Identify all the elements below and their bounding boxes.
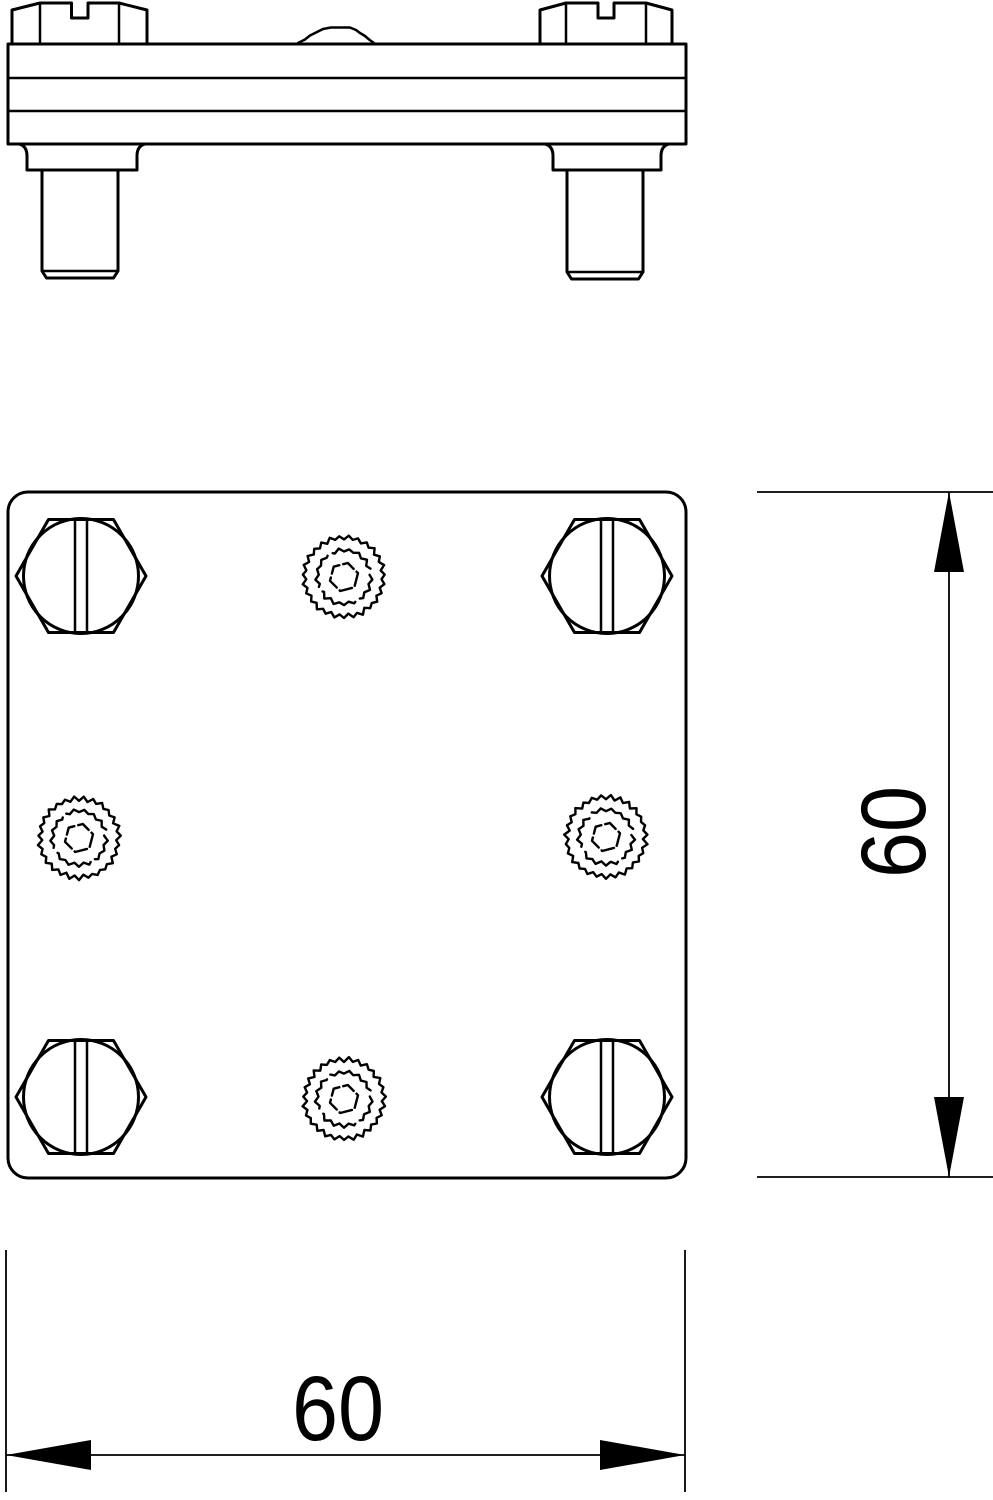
drawing-sheet: 60 60 <box>0 0 993 1500</box>
knurled-socket-middle-left <box>38 797 121 881</box>
side-view <box>8 3 686 279</box>
knurl-inner-ring <box>315 549 372 606</box>
hex-bolt-head-circle <box>550 1040 665 1155</box>
hex-bolt-head-circle <box>550 519 665 634</box>
screw-head-right-outline <box>540 3 672 44</box>
stud-left-shank <box>42 170 118 278</box>
hex-bolt-top-left <box>16 519 146 634</box>
side-view-plate-stack <box>8 44 686 144</box>
width-dimension-label: 60 <box>292 1357 384 1460</box>
screw-head-left-outline <box>12 3 147 44</box>
stud-right <box>545 144 669 279</box>
stud-right-collar <box>545 144 669 170</box>
knurl-inner-ring <box>577 808 635 865</box>
knurl-inner-ring <box>315 1071 373 1128</box>
hex-socket <box>330 1085 358 1113</box>
arrowhead-left <box>6 1440 91 1470</box>
plate-stack-outline <box>8 44 686 144</box>
vertical-dimension: 60 <box>757 492 993 1177</box>
arrowhead-up <box>934 492 964 572</box>
hex-bolt-hexagon <box>16 520 146 633</box>
hex-bolt-head-circle <box>24 1040 139 1155</box>
hex-bolt-bottom-right <box>542 1040 672 1155</box>
hex-bolt-hexagon <box>542 520 672 633</box>
hex-bolt-hexagon <box>542 1041 672 1154</box>
hex-socket <box>330 563 358 591</box>
height-dimension-label: 60 <box>842 786 945 878</box>
embossed-marking-bump <box>298 28 374 44</box>
hex-bolt-hexagon <box>16 1041 146 1154</box>
stud-right-shank <box>567 170 643 279</box>
stud-left <box>19 144 145 278</box>
knurl-inner-ring <box>50 810 108 867</box>
hex-bolt-top-right <box>542 519 672 634</box>
stud-left-collar <box>19 144 145 170</box>
hex-bolt-bottom-left <box>16 1040 146 1155</box>
top-view <box>8 492 686 1178</box>
screw-head-right <box>540 3 672 44</box>
knurled-socket-bottom-center <box>303 1057 386 1140</box>
horizontal-dimension: 60 <box>6 1250 685 1492</box>
arrowhead-right <box>600 1440 685 1470</box>
hex-socket <box>65 824 93 852</box>
plate-face-outline <box>8 492 686 1178</box>
screw-head-left <box>12 3 147 44</box>
hex-bolt-head-circle <box>24 519 139 634</box>
knurled-socket-middle-right <box>564 795 647 879</box>
arrowhead-down <box>934 1097 964 1177</box>
technical-drawing: 60 60 <box>0 0 993 1500</box>
hex-socket <box>592 823 620 851</box>
knurled-socket-top-center <box>303 536 385 618</box>
